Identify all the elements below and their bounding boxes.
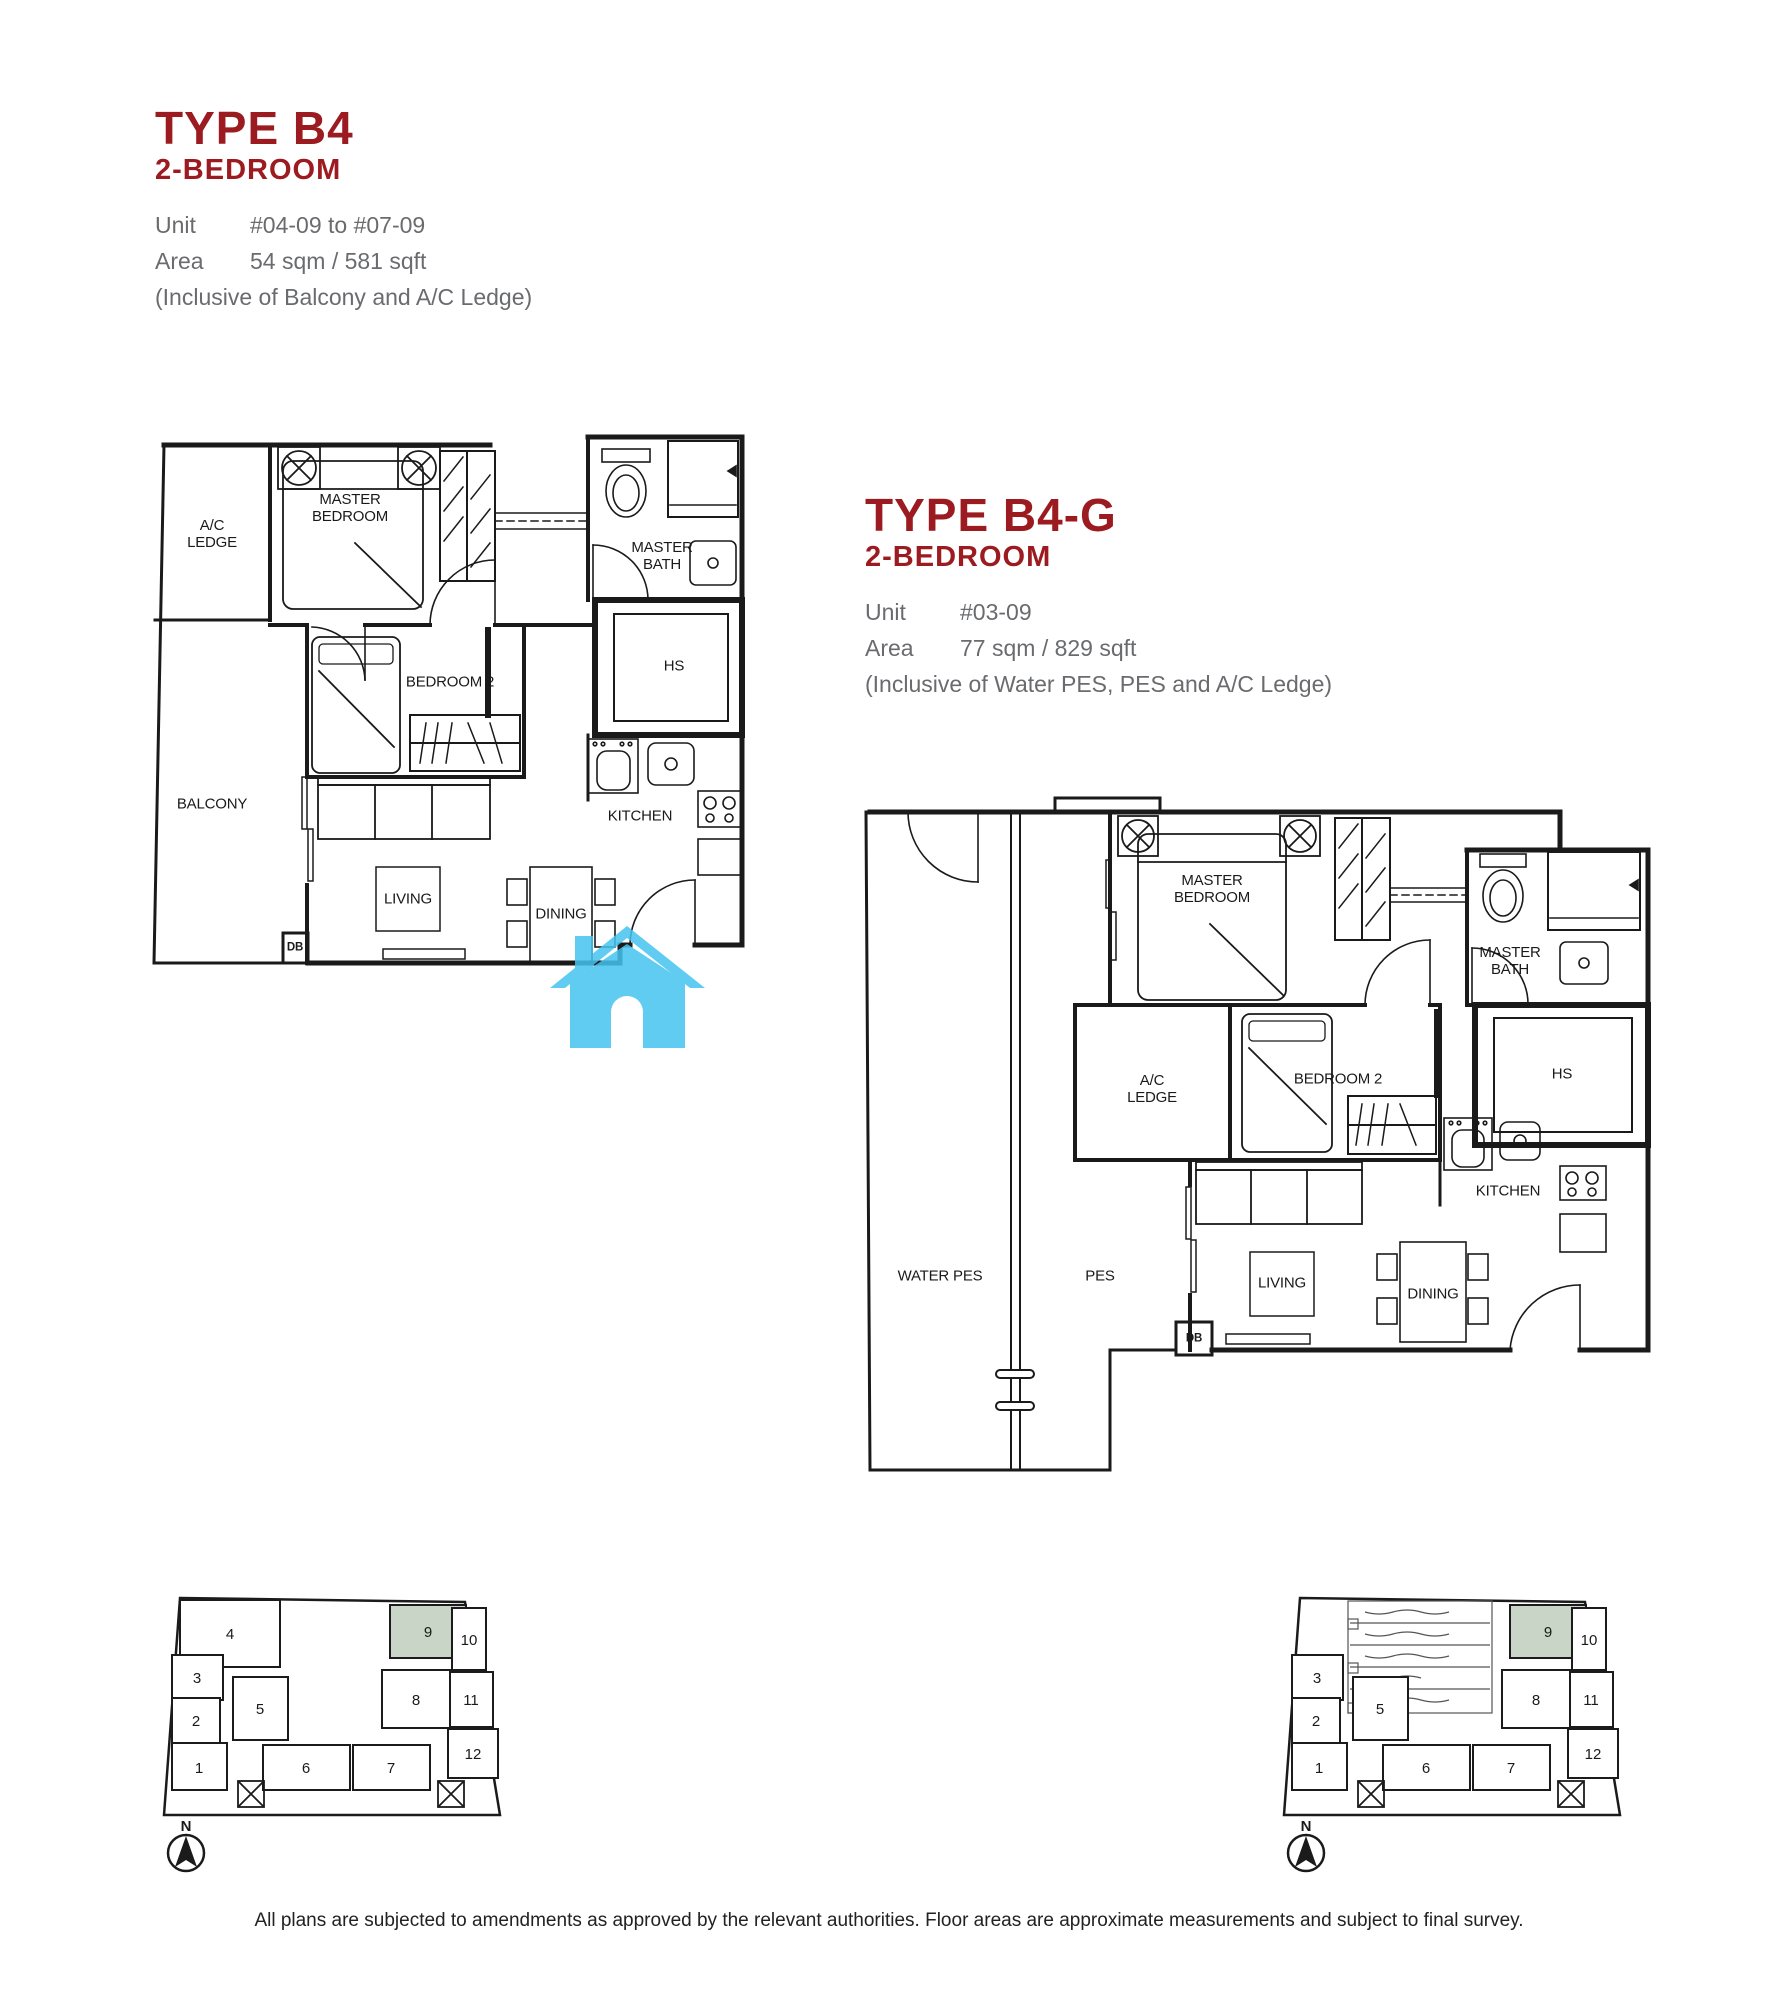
room-label-kitchen: KITCHEN xyxy=(590,809,690,826)
plan-subtitle: 2-BEDROOM xyxy=(155,154,532,187)
sliding-door xyxy=(302,777,313,881)
room-label-bedroom2: BEDROOM 2 xyxy=(390,675,510,692)
plan-subtitle: 2-BEDROOM xyxy=(865,541,1332,574)
room-label-bedroom2: BEDROOM 2 xyxy=(1278,1072,1398,1089)
unit-number-5: 5 xyxy=(256,1701,264,1718)
unit-number-6: 6 xyxy=(302,1760,310,1777)
area-value: 77 sqm / 829 sqft xyxy=(960,630,1136,666)
wardrobe-bedroom2 xyxy=(1348,1096,1436,1154)
room-label-balcony: BALCONY xyxy=(162,797,262,814)
unit-number-6: 6 xyxy=(1422,1760,1430,1777)
room-label-living: LIVING xyxy=(373,892,443,909)
unit-label: Unit xyxy=(155,207,250,243)
unit-number-2: 2 xyxy=(192,1713,200,1730)
room-label-pes: PES xyxy=(1070,1269,1130,1286)
unit-number-1: 1 xyxy=(1315,1760,1323,1777)
parapet-walls xyxy=(866,812,1212,1470)
area-label: Area xyxy=(865,630,960,666)
room-label-master-bedroom: MASTER BEDROOM xyxy=(1163,873,1261,907)
unit-blocks xyxy=(172,1600,498,1790)
room-label-hs: HS xyxy=(1532,1067,1592,1084)
watermark-house-logo xyxy=(545,920,710,1065)
unit-number-11: 11 xyxy=(1583,1692,1599,1709)
bed-master xyxy=(283,461,423,609)
area-label: Area xyxy=(155,243,250,279)
unit-number-12: 12 xyxy=(1585,1746,1602,1763)
wardrobe-master xyxy=(440,451,495,581)
unit-number-8: 8 xyxy=(1532,1692,1540,1709)
unit-number-5: 5 xyxy=(1376,1701,1384,1718)
unit-number-3: 3 xyxy=(1313,1670,1321,1687)
unit-number-1: 1 xyxy=(195,1760,203,1777)
room-label-db: DB xyxy=(1179,1333,1209,1346)
room-label-master-bedroom: MASTER BEDROOM xyxy=(301,492,399,526)
floorplan-type-b4: A/C LEDGE MASTER BEDROOM MASTER BATH HS … xyxy=(150,415,750,995)
unit-number-10: 10 xyxy=(1581,1632,1598,1649)
keyplan-type-b4: 4 3 2 1 5 6 7 8 9 10 11 12 N xyxy=(150,1585,510,1895)
tv-console xyxy=(383,949,465,959)
vent-symbols xyxy=(278,447,440,489)
plan-info: Unit#03-09 Area77 sqm / 829 sqft (Inclus… xyxy=(865,594,1332,702)
room-label-living: LIVING xyxy=(1247,1276,1317,1293)
unit-number-12: 12 xyxy=(465,1746,482,1763)
sofa xyxy=(1196,1162,1362,1224)
floorplan-b4-drawing xyxy=(150,415,750,995)
tv-console xyxy=(1226,1334,1310,1344)
north-label: N xyxy=(181,1818,192,1835)
room-label-master-bath: MASTER BATH xyxy=(1471,945,1549,979)
room-label-kitchen: KITCHEN xyxy=(1458,1184,1558,1201)
room-label-db: DB xyxy=(280,942,310,955)
keyplan-type-b4g: 3 2 1 5 6 7 8 9 10 11 12 N xyxy=(1270,1585,1630,1895)
pes-divider xyxy=(996,812,1034,1470)
unit-number-9-highlighted: 9 xyxy=(1544,1624,1552,1641)
room-label-water-pes: WATER PES xyxy=(890,1269,990,1286)
room-label-ac-ledge: A/C LEDGE xyxy=(185,518,239,552)
unit-number-9-highlighted: 9 xyxy=(424,1624,432,1641)
wardrobe-master xyxy=(1335,818,1390,940)
outer-walls xyxy=(164,437,742,963)
bed-master xyxy=(1138,834,1286,1000)
inclusive-note: (Inclusive of Water PES, PES and A/C Led… xyxy=(865,666,1332,702)
room-label-ac-ledge: A/C LEDGE xyxy=(1125,1073,1179,1107)
unit-number-7: 7 xyxy=(387,1760,395,1777)
unit-value: #04-09 to #07-09 xyxy=(250,207,425,243)
disclaimer-text: All plans are subjected to amendments as… xyxy=(0,1910,1778,1932)
unit-blocks xyxy=(1292,1605,1618,1790)
unit-number-7: 7 xyxy=(1507,1760,1515,1777)
unit-label: Unit xyxy=(865,594,960,630)
unit-number-11: 11 xyxy=(463,1692,479,1709)
unit-number-3: 3 xyxy=(193,1670,201,1687)
plan-info: Unit#04-09 to #07-09 Area54 sqm / 581 sq… xyxy=(155,207,532,315)
vent-symbols xyxy=(1118,816,1320,856)
floorplan-brochure-page: TYPE B4 2-BEDROOM Unit#04-09 to #07-09 A… xyxy=(0,0,1778,2000)
unit-value: #03-09 xyxy=(960,594,1032,630)
unit-number-4: 4 xyxy=(226,1626,234,1643)
plan-title: TYPE B4 xyxy=(155,105,532,151)
unit-number-10: 10 xyxy=(461,1632,478,1649)
sofa xyxy=(318,777,490,839)
plan-title: TYPE B4-G xyxy=(865,492,1332,538)
wardrobe-bedroom2 xyxy=(410,715,520,771)
header-type-b4: TYPE B4 2-BEDROOM Unit#04-09 to #07-09 A… xyxy=(155,105,532,315)
unit-number-8: 8 xyxy=(412,1692,420,1709)
bed-bedroom2 xyxy=(312,637,400,773)
room-label-dining: DINING xyxy=(1398,1287,1468,1304)
floorplan-type-b4g: WATER PES PES MASTER BEDROOM A/C LEDGE B… xyxy=(860,790,1660,1490)
ac-link xyxy=(495,513,588,529)
unit-number-2: 2 xyxy=(1312,1713,1320,1730)
house-icon xyxy=(550,926,705,1048)
ac-link xyxy=(1390,888,1467,902)
inclusive-note: (Inclusive of Balcony and A/C Ledge) xyxy=(155,279,532,315)
north-label: N xyxy=(1301,1818,1312,1835)
header-type-b4g: TYPE B4-G 2-BEDROOM Unit#03-09 Area77 sq… xyxy=(865,492,1332,702)
area-value: 54 sqm / 581 sqft xyxy=(250,243,426,279)
room-label-master-bath: MASTER BATH xyxy=(623,540,701,574)
room-label-hs: HS xyxy=(644,659,704,676)
north-arrow-icon: N xyxy=(1288,1818,1324,1871)
north-arrow-icon: N xyxy=(168,1818,204,1871)
gate-door xyxy=(908,812,978,882)
